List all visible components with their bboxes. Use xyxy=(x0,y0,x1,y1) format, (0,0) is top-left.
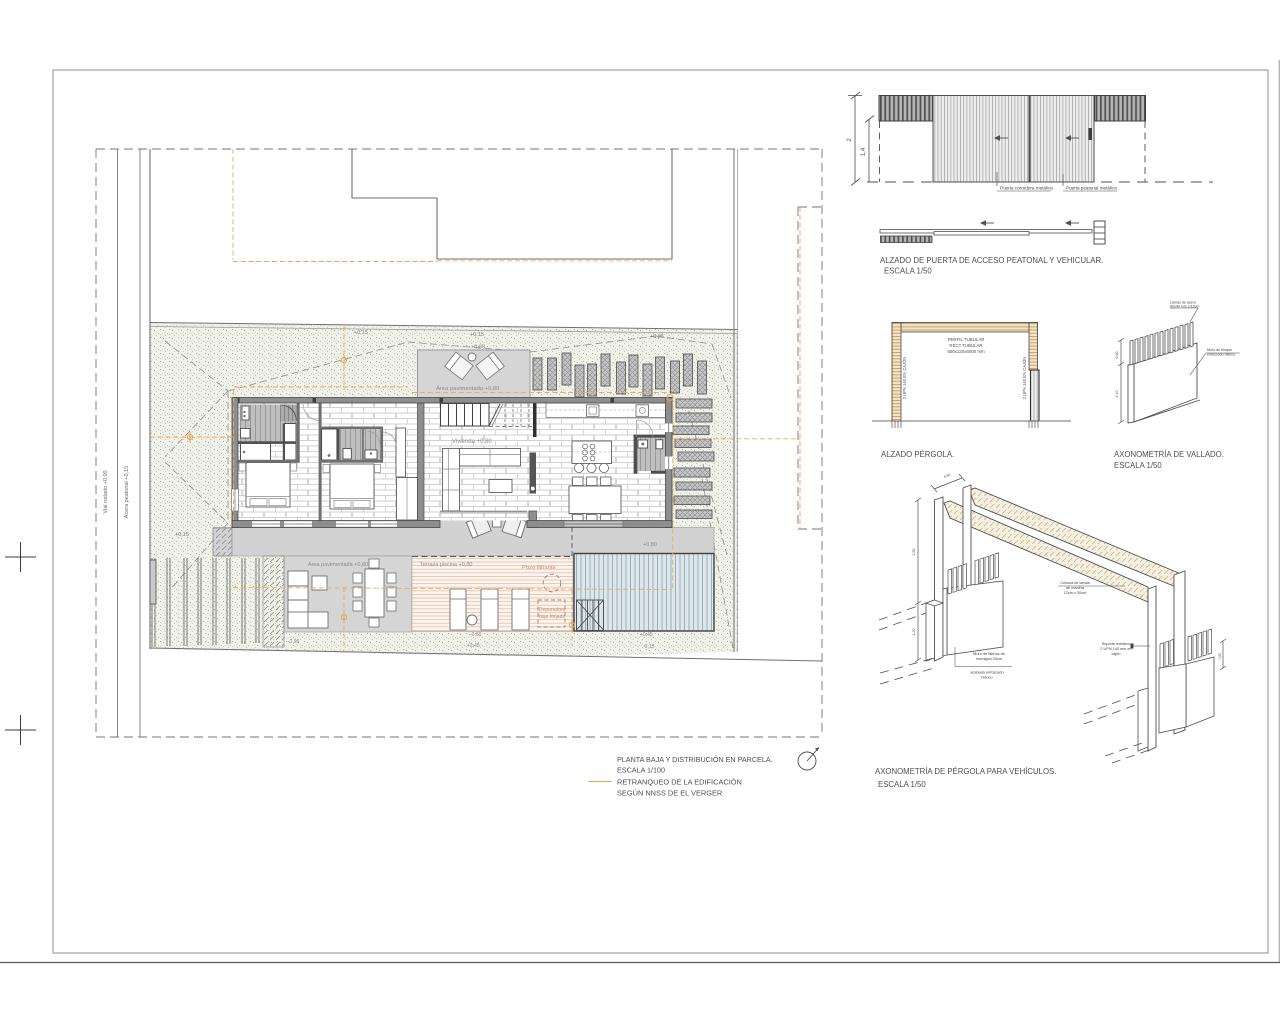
svg-text:Depuradora: Depuradora xyxy=(539,607,566,613)
svg-text:PLANTA BAJA Y DISTRIBUCIÓN EN: PLANTA BAJA Y DISTRIBUCIÓN EN PARCELA. xyxy=(617,755,773,764)
svg-text:12cm x 30cm: 12cm x 30cm xyxy=(1064,591,1087,595)
svg-text:+0,15: +0,15 xyxy=(354,330,368,336)
svg-text:RECT.TUBULAR: RECT.TUBULAR xyxy=(949,343,982,348)
svg-text:RETRANQUEO DE LA EDIFICACIÓN: RETRANQUEO DE LA EDIFICACIÓN xyxy=(617,778,742,787)
svg-text:2,50: 2,50 xyxy=(912,549,916,556)
svg-text:+0,80: +0,80 xyxy=(643,542,657,548)
svg-text:60x40 mm c/12cm: 60x40 mm c/12cm xyxy=(1170,305,1199,309)
svg-text:PERFIL TUBULAR: PERFIL TUBULAR xyxy=(948,337,985,342)
svg-text:0,60: 0,60 xyxy=(1115,352,1119,359)
svg-text:Terraza piscina +0,80: Terraza piscina +0,80 xyxy=(420,562,472,568)
svg-text:Área pavimentada +0,80: Área pavimentada +0,80 xyxy=(308,561,368,568)
svg-text:+0,45: +0,45 xyxy=(640,632,653,638)
svg-text:Vivienda +0,80: Vivienda +0,80 xyxy=(452,439,492,445)
svg-text:ESCALA 1/50: ESCALA 1/50 xyxy=(878,780,926,789)
svg-text:Puerta corredera metálica: Puerta corredera metálica xyxy=(1000,186,1053,191)
svg-text:Suporte metálico: Suporte metálico xyxy=(1102,642,1131,646)
svg-text:ESCALA 1/50: ESCALA 1/50 xyxy=(884,267,932,276)
svg-text:enfoscado blanco: enfoscado blanco xyxy=(1207,353,1235,357)
svg-text:-1,95: -1,95 xyxy=(288,639,300,645)
svg-text:Puerta peatonal metálica: Puerta peatonal metálica xyxy=(1066,186,1117,191)
svg-text:Pozo filtrante: Pozo filtrante xyxy=(522,565,556,571)
svg-text:+2,45: +2,45 xyxy=(467,643,480,649)
svg-text:AXONOMETRÍA DE VALLADO.: AXONOMETRÍA DE VALLADO. xyxy=(1114,450,1224,459)
svg-text:bajo forjado: bajo forjado xyxy=(539,614,565,620)
svg-text:+0,15: +0,15 xyxy=(175,532,189,538)
svg-text:ESCALA 1/100: ESCALA 1/100 xyxy=(617,766,665,775)
svg-text:blanco: blanco xyxy=(981,676,992,680)
svg-text:2 UPN 140 EN CAJÓN: 2 UPN 140 EN CAJÓN xyxy=(1022,357,1027,400)
svg-text:hormigón 20cm: hormigón 20cm xyxy=(976,657,1002,661)
svg-text:ESCALA 1/50: ESCALA 1/50 xyxy=(1114,461,1162,470)
svg-text:Muro de fábrica de: Muro de fábrica de xyxy=(973,652,1005,656)
svg-text:Celosía de lamas: Celosía de lamas xyxy=(1060,581,1089,585)
svg-text:1,4: 1,4 xyxy=(861,147,867,156)
svg-text:0,60: 0,60 xyxy=(1218,653,1222,660)
svg-text:Acera peatonal +0,15: Acera peatonal +0,15 xyxy=(124,466,130,518)
svg-text:SEGÚN NNSS DE EL VERGER: SEGÚN NNSS DE EL VERGER xyxy=(617,789,722,798)
svg-text:AXONOMETRÍA DE PÉRGOLA PARA VE: AXONOMETRÍA DE PÉRGOLA PARA VEHÍCULOS. xyxy=(875,767,1056,776)
svg-text:acabado enfoscado: acabado enfoscado xyxy=(970,671,1003,675)
svg-text:1,40: 1,40 xyxy=(1115,391,1119,398)
svg-text:Área pavimentada +0,80: Área pavimentada +0,80 xyxy=(436,385,499,392)
svg-text:ALZADO PÉRGOLA.: ALZADO PÉRGOLA. xyxy=(881,450,954,459)
svg-text:Muro de bloque: Muro de bloque xyxy=(1207,348,1232,352)
svg-text:+0,85: +0,85 xyxy=(650,334,664,340)
svg-text:-0,60: -0,60 xyxy=(470,632,482,638)
svg-text:2 UPN 140 EN CAJÓN: 2 UPN 140 EN CAJÓN xyxy=(902,357,907,400)
svg-text:+0,15: +0,15 xyxy=(470,332,484,338)
svg-text:600x120x6000 mm: 600x120x6000 mm xyxy=(947,349,985,354)
svg-text:Vial rodado +0,00: Vial rodado +0,00 xyxy=(103,470,109,513)
svg-text:de madera: de madera xyxy=(1066,586,1085,590)
svg-text:1,20: 1,20 xyxy=(912,629,916,636)
svg-text:ALZADO DE PUERTA DE ACCESO PEA: ALZADO DE PUERTA DE ACCESO PEATONAL Y VE… xyxy=(880,256,1103,265)
svg-text:2 UPN 140 mm en: 2 UPN 140 mm en xyxy=(1100,647,1131,651)
svg-text:cajón: cajón xyxy=(1111,652,1120,656)
svg-text:-0,15: -0,15 xyxy=(643,644,655,650)
